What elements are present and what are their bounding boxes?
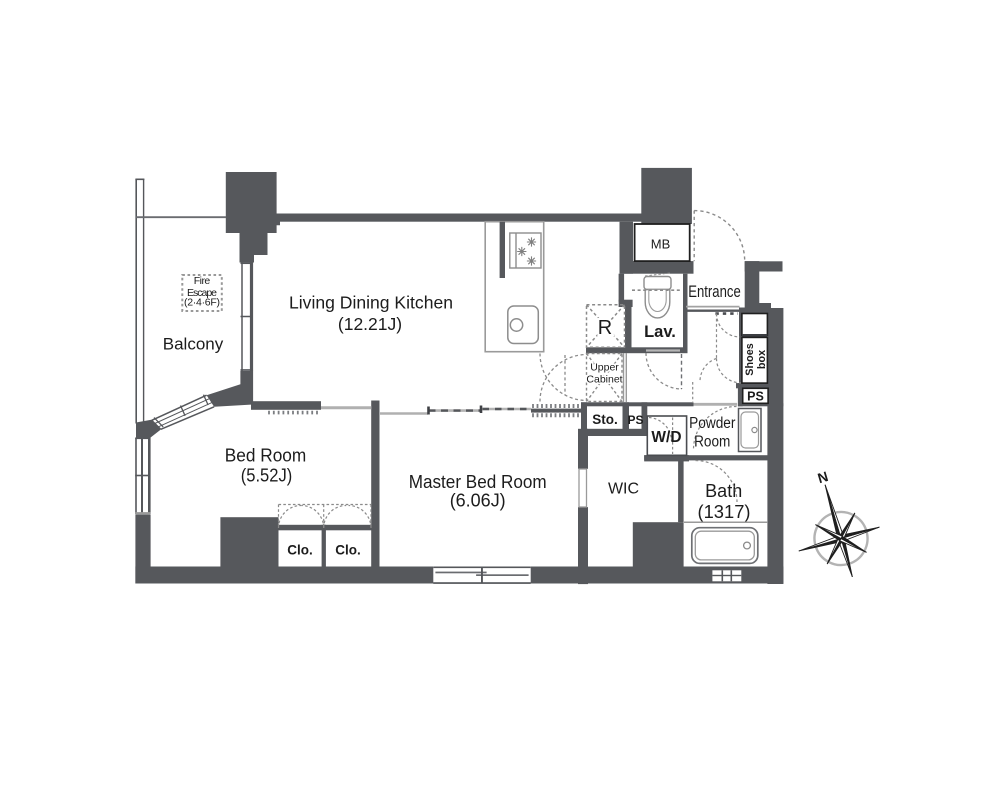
svg-text:Living Dining Kitchen: Living Dining Kitchen xyxy=(289,293,453,313)
svg-text:Balcony: Balcony xyxy=(163,335,224,354)
svg-text:(12.21J): (12.21J) xyxy=(338,314,402,334)
svg-text:WIC: WIC xyxy=(608,481,639,498)
svg-text:(1317): (1317) xyxy=(698,502,751,522)
svg-text:W/D: W/D xyxy=(651,429,681,446)
svg-text:box: box xyxy=(756,350,768,369)
svg-text:Fire: Fire xyxy=(194,275,211,287)
svg-text:Clo.: Clo. xyxy=(287,543,313,558)
svg-text:Master Bed Room: Master Bed Room xyxy=(409,472,547,492)
svg-text:(5.52J): (5.52J) xyxy=(241,466,293,486)
svg-text:R: R xyxy=(598,317,612,339)
svg-text:(6.06J): (6.06J) xyxy=(450,491,506,511)
svg-text:Cabinet: Cabinet xyxy=(586,374,622,386)
svg-text:Upper: Upper xyxy=(590,362,619,374)
svg-text:MB: MB xyxy=(651,237,671,252)
svg-text:Bed Room: Bed Room xyxy=(225,446,307,466)
svg-text:Sto.: Sto. xyxy=(592,412,618,427)
svg-text:Room: Room xyxy=(694,434,730,451)
svg-text:Shoes: Shoes xyxy=(744,343,756,375)
svg-text:Powder: Powder xyxy=(689,415,735,432)
svg-text:PS: PS xyxy=(627,413,643,427)
svg-text:(2·4·6F): (2·4·6F) xyxy=(184,297,220,309)
svg-text:Entrance: Entrance xyxy=(688,282,741,301)
svg-text:Clo.: Clo. xyxy=(335,543,361,558)
svg-text:PS: PS xyxy=(747,390,764,404)
svg-text:Lav.: Lav. xyxy=(644,323,676,341)
svg-text:Bath: Bath xyxy=(705,481,742,501)
